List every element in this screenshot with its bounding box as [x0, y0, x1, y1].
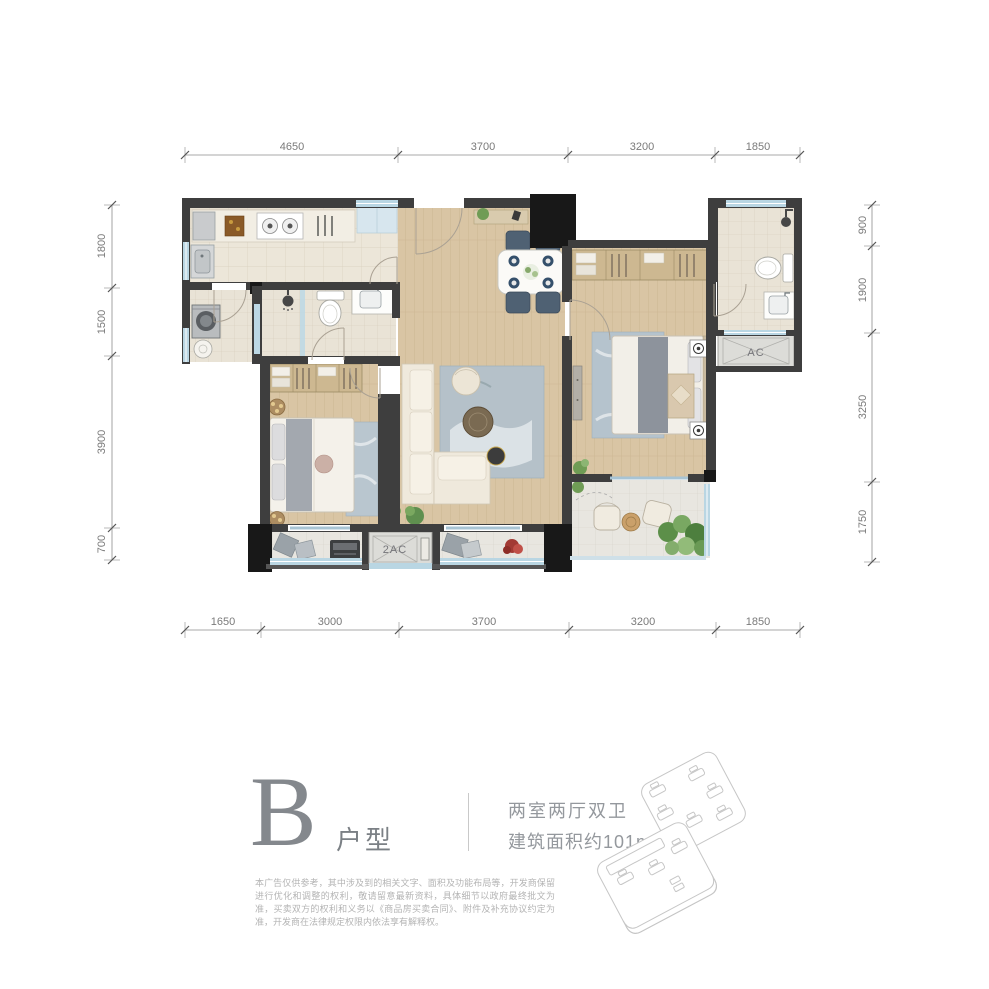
dimension-top-labels: 4650 3700 3200 1850 [280, 141, 770, 153]
dim-left-1: 1800 [96, 234, 108, 258]
site-plan-sketch [595, 750, 765, 950]
kitchen-sink-icon [191, 245, 214, 278]
dresser [573, 366, 582, 420]
dim-right-3: 3250 [857, 395, 869, 419]
vanity-sink-icon [352, 287, 394, 314]
ac-platform: AC [718, 334, 794, 368]
ac2-label: 2AC [383, 544, 407, 556]
dimension-left-labels: 1800 1500 3900 700 [96, 234, 108, 553]
dim-top-3: 3200 [630, 141, 654, 153]
table-centerpiece [523, 264, 539, 280]
plant-icon [477, 208, 489, 220]
fridge-icon [193, 212, 215, 240]
floor-plan-page: AC 2AC [0, 0, 989, 989]
unit-letter: B [250, 762, 317, 862]
wardrobe [270, 364, 362, 392]
dim-top-1: 4650 [280, 141, 304, 153]
dim-right-2: 1900 [857, 278, 869, 302]
laundry-basin-icon [194, 340, 212, 358]
laptop-icon [330, 540, 360, 560]
dim-bottom-2: 3000 [318, 616, 342, 628]
dim-top-2: 3700 [471, 141, 495, 153]
divider [468, 793, 469, 851]
pillow-icon [461, 540, 482, 558]
unit-type-label: 户型 [336, 820, 394, 857]
dimension-bottom-labels: 1650 3000 3700 3200 1850 [211, 616, 770, 628]
dim-bottom-1: 1650 [211, 616, 235, 628]
bedroom-2 [269, 364, 378, 527]
bath2-sink-icon [764, 292, 794, 319]
dim-right-4: 1750 [857, 510, 869, 534]
dim-left-2: 1500 [96, 310, 108, 334]
dim-left-3: 3900 [96, 430, 108, 454]
disclaimer-text: 本广告仅供参考，其中涉及到的相关文字、面积及功能布局等，开发商保留进行优化和调整… [255, 877, 555, 929]
dimension-right-labels: 900 1900 3250 1750 [857, 216, 869, 534]
dim-bottom-4: 3200 [631, 616, 655, 628]
dim-top-4: 1850 [746, 141, 770, 153]
dim-left-4: 700 [96, 535, 108, 553]
cutting-board-icon [225, 216, 244, 236]
master-wardrobe [572, 250, 708, 280]
armchair [452, 367, 480, 395]
stove-icon [257, 213, 303, 239]
dim-bottom-3: 3700 [472, 616, 496, 628]
plant-icon [572, 481, 584, 493]
dim-bottom-5: 1850 [746, 616, 770, 628]
dim-right-1: 900 [857, 216, 869, 234]
ac-label: AC [747, 347, 764, 359]
shower-glass [300, 288, 305, 358]
bed [270, 418, 354, 512]
terrace-table-icon [622, 513, 640, 531]
floor-plan: AC 2AC [0, 0, 989, 740]
